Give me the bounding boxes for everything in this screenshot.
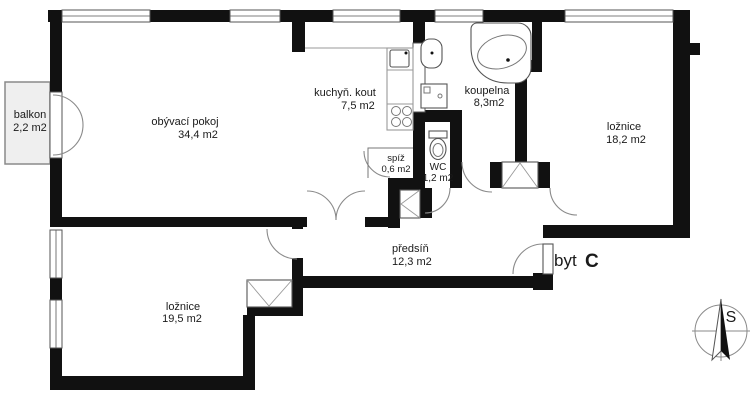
window bbox=[62, 10, 150, 22]
living-room-double-door-icon bbox=[307, 191, 336, 220]
bathtub-icon bbox=[471, 23, 531, 83]
room-label-koupelna: koupelna bbox=[465, 85, 511, 97]
balcony-door-opening bbox=[50, 92, 62, 158]
window bbox=[333, 10, 400, 22]
room-area-loznice-south: 19,5 m2 bbox=[162, 313, 202, 325]
room-label-balkon: balkon bbox=[14, 109, 46, 121]
bedroom-east-door-icon bbox=[550, 188, 577, 215]
room-area-koupelna: 8,3m2 bbox=[474, 97, 505, 109]
room-area-kuchyn-kout: 7,5 m2 bbox=[341, 100, 375, 112]
wardrobe-icon bbox=[400, 190, 420, 218]
room-label-loznice-east: ložnice bbox=[607, 121, 641, 133]
room-label-wc: WC bbox=[430, 162, 447, 173]
room-label-kuchyn-kout: kuchyň. kout bbox=[314, 87, 376, 99]
room-area-wc: 1,2 m2 bbox=[423, 173, 454, 184]
wardrobe-icon bbox=[247, 280, 292, 307]
toilet-icon bbox=[429, 131, 447, 160]
room-label-loznice-south: ložnice bbox=[166, 301, 200, 313]
window bbox=[565, 10, 673, 22]
room-area-balkon: 2,2 m2 bbox=[13, 122, 47, 134]
apartment-label: byt C bbox=[554, 251, 599, 272]
room-area-spiz: 0,6 m2 bbox=[381, 164, 410, 175]
bathroom-door-icon bbox=[462, 162, 492, 192]
compass-north-label: S bbox=[726, 309, 737, 326]
kitchen-sink-icon bbox=[390, 50, 409, 67]
washbasin-icon bbox=[421, 39, 442, 68]
room-label-obyvaci-pokoj: obývací pokoj bbox=[151, 116, 218, 128]
room-label-predsin: předsíň bbox=[392, 243, 429, 255]
entrance-door-icon bbox=[513, 244, 553, 274]
floor-plan-canvas: S balkon 2,2 m2 obývací pokoj 34,4 m2 ku… bbox=[0, 0, 755, 400]
apartment-label-prefix: byt bbox=[554, 251, 577, 270]
washing-machine-icon bbox=[421, 84, 447, 108]
bedroom-south-door-icon bbox=[267, 229, 297, 259]
room-area-predsin: 12,3 m2 bbox=[392, 256, 432, 268]
room-label-spiz: spíž bbox=[387, 153, 405, 164]
room-area-loznice-east: 18,2 m2 bbox=[606, 134, 646, 146]
windows-layer bbox=[50, 10, 673, 348]
window bbox=[50, 230, 62, 278]
room-area-obyvaci-pokoj: 34,4 m2 bbox=[178, 129, 218, 141]
window bbox=[435, 10, 483, 22]
compass-icon: S bbox=[692, 299, 750, 361]
wardrobe-icon bbox=[502, 162, 538, 188]
floor-plan-drawing: S balkon 2,2 m2 obývací pokoj 34,4 m2 ku… bbox=[0, 0, 755, 400]
apartment-unit-letter: C bbox=[585, 251, 599, 272]
window bbox=[50, 300, 62, 348]
walls-layer bbox=[48, 10, 700, 390]
window bbox=[230, 10, 280, 22]
living-room-double-door-icon bbox=[336, 191, 365, 220]
